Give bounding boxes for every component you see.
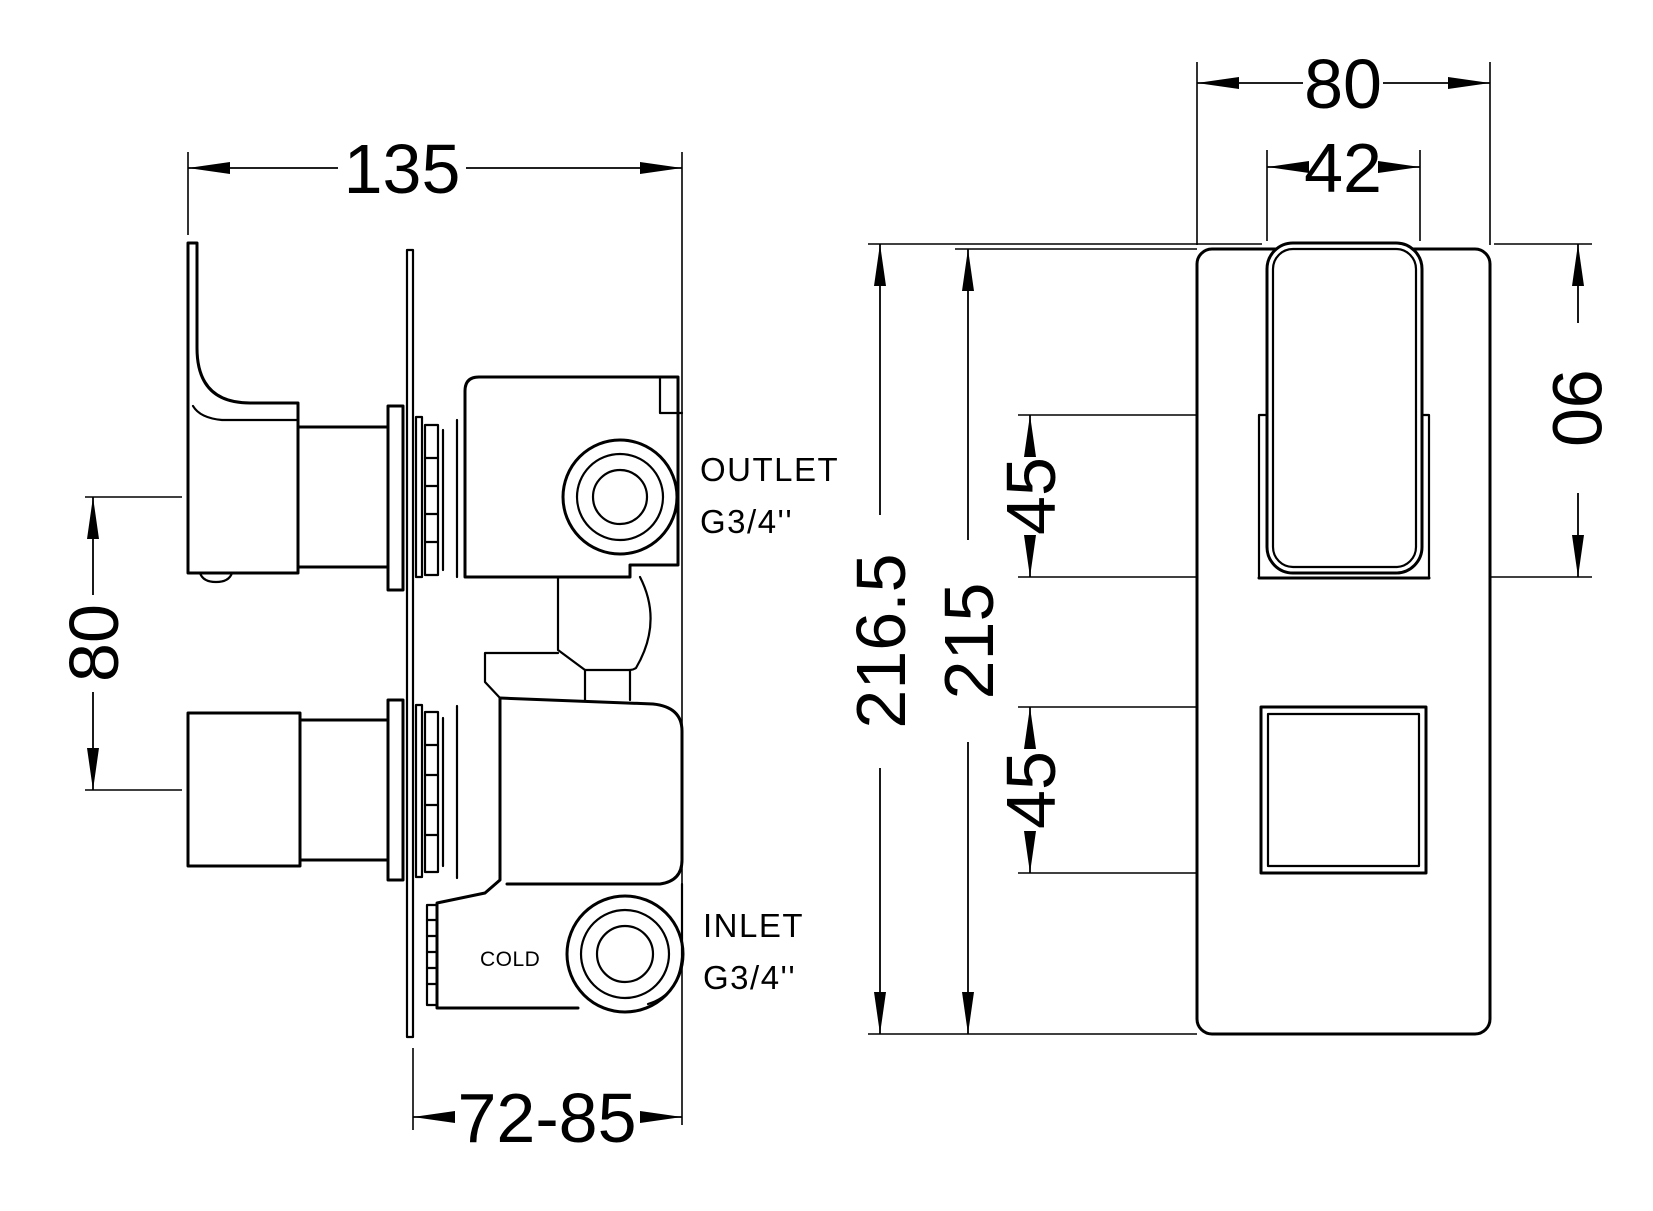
upper-cartridge-spacers (416, 417, 457, 577)
dim-90: 90 (1538, 244, 1616, 577)
dim-135-text: 135 (344, 130, 461, 208)
lower-cartridge-spacers (416, 705, 457, 878)
side-view: COLD OUTLET G3/4'' INLET G3/4'' 135 80 (55, 130, 839, 1157)
dim-80-plate-text: 80 (1304, 45, 1382, 123)
dim-215: 215 (930, 249, 1008, 1034)
dim-72-85: 72-85 (413, 1079, 682, 1157)
outlet-label: OUTLET G3/4'' (700, 451, 839, 540)
dim-72-85-text: 72-85 (457, 1079, 636, 1157)
mixer-block (437, 698, 682, 1008)
dim-45-upper-text: 45 (992, 457, 1070, 535)
inlet-label-line1: INLET (703, 907, 804, 944)
upper-handle-stem (298, 427, 388, 567)
dim-42-text: 42 (1304, 129, 1382, 207)
dim-45-lower: 45 (992, 707, 1070, 873)
dim-80-spacing: 80 (55, 497, 133, 790)
dim-216-5: 216.5 (842, 244, 920, 1034)
lever-handle (188, 243, 298, 582)
lower-knob-stem (300, 720, 388, 860)
outlet-label-line1: OUTLET (700, 451, 839, 488)
lower-knob (188, 713, 300, 866)
outlet-label-line2: G3/4'' (700, 503, 793, 540)
wall-plate-side (407, 250, 413, 1037)
lower-flange (388, 700, 403, 880)
dim-45-upper: 45 (992, 415, 1070, 577)
front-view: 80 42 216.5 215 90 (842, 45, 1616, 1034)
inlet-label-line2: G3/4'' (703, 959, 796, 996)
dim-80-spacing-text: 80 (55, 604, 133, 682)
upper-flange (388, 406, 403, 590)
dim-135: 135 (188, 130, 682, 208)
inlet-label: INLET G3/4'' (703, 907, 804, 996)
technical-drawing-page: COLD OUTLET G3/4'' INLET G3/4'' 135 80 (0, 0, 1653, 1211)
cold-marking: COLD (480, 948, 540, 971)
dim-42: 42 (1267, 129, 1420, 207)
dim-45-lower-text: 45 (992, 751, 1070, 829)
dim-80-plate: 80 (1197, 45, 1490, 123)
upper-handle-front (1267, 243, 1422, 573)
shower-valve-drawing: COLD OUTLET G3/4'' INLET G3/4'' 135 80 (0, 0, 1653, 1211)
inlet-port-circles (567, 896, 683, 1012)
dim-90-text: 90 (1538, 369, 1616, 447)
dim-216-5-text: 216.5 (842, 553, 920, 728)
outlet-port-circles (563, 440, 677, 554)
dim-215-text: 215 (930, 583, 1008, 700)
mid-body-transition (485, 577, 651, 700)
